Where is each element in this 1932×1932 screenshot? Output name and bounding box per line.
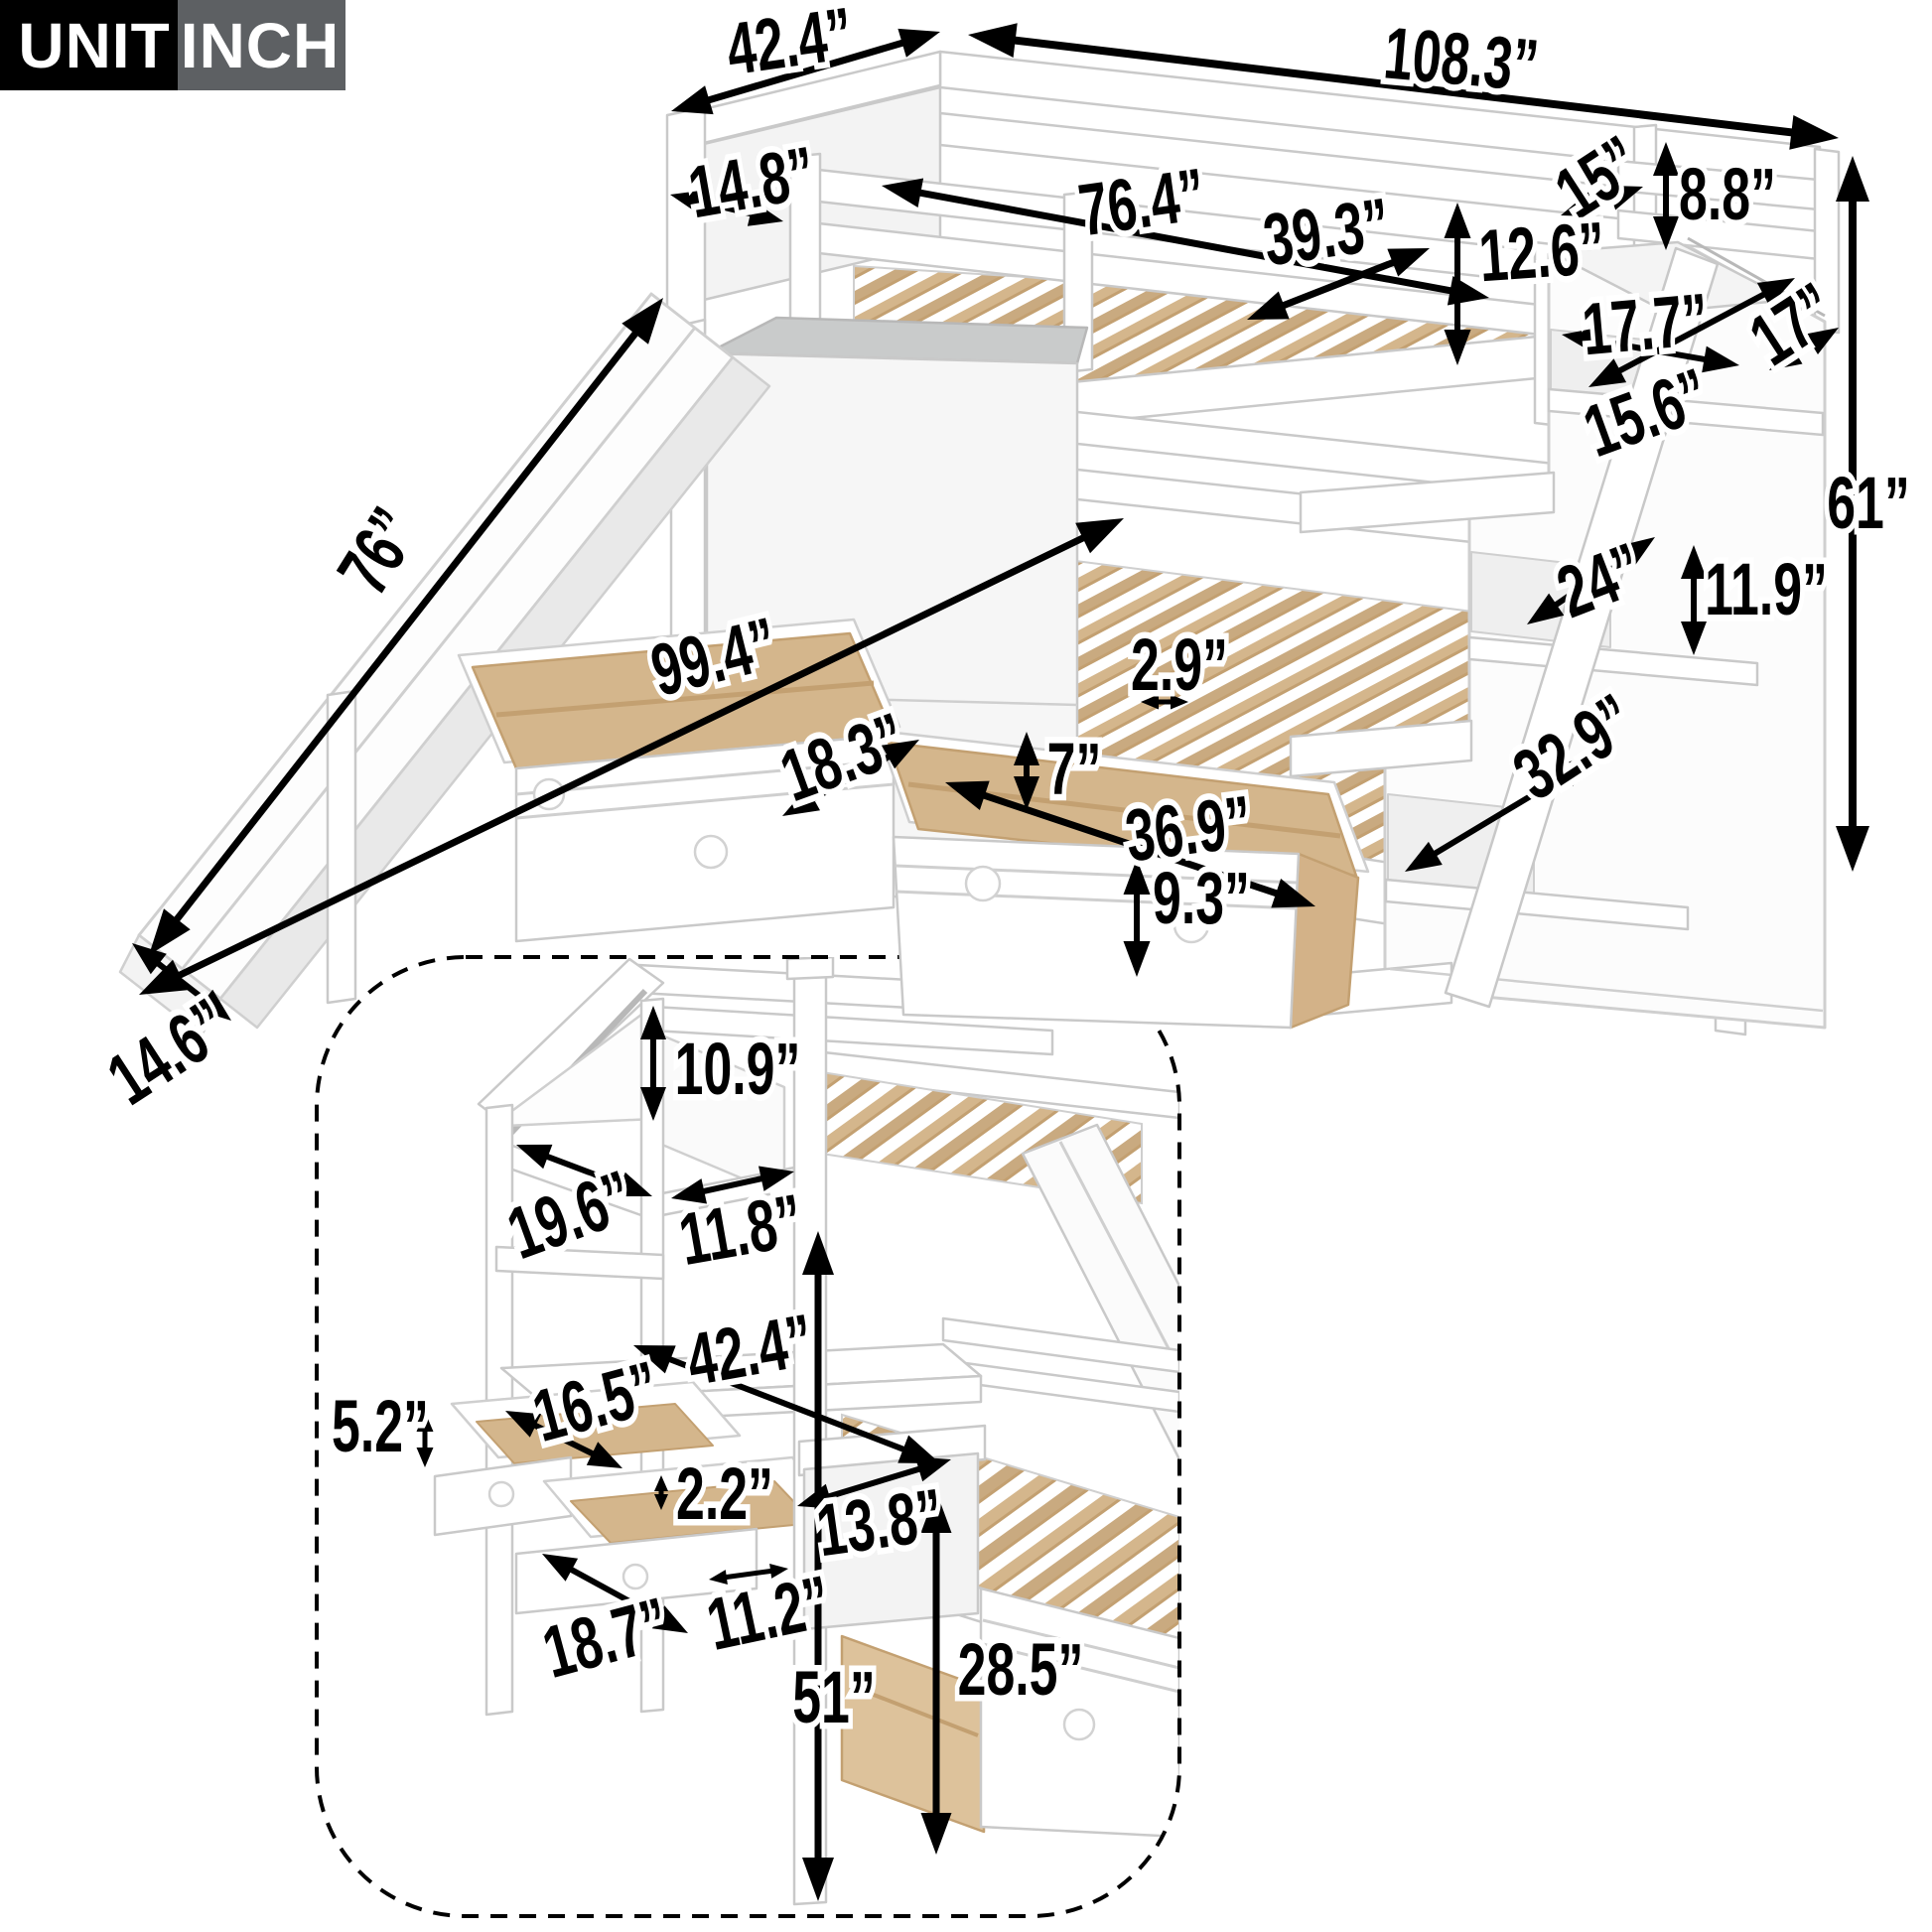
svg-text:2.2”: 2.2” xyxy=(676,1452,773,1535)
svg-text:8.8”: 8.8” xyxy=(1679,153,1776,235)
svg-text:12.6”: 12.6” xyxy=(1476,206,1607,297)
svg-text:11.9”: 11.9” xyxy=(1705,548,1828,630)
svg-text:13.8”: 13.8” xyxy=(812,1472,948,1572)
svg-text:2.9”: 2.9” xyxy=(1131,623,1228,706)
svg-text:INCH: INCH xyxy=(181,10,340,81)
svg-text:108.3”: 108.3” xyxy=(1381,11,1542,107)
svg-text:39.3”: 39.3” xyxy=(1259,182,1395,281)
svg-text:61”: 61” xyxy=(1827,462,1910,544)
svg-text:UNIT: UNIT xyxy=(18,10,170,81)
svg-text:76.4”: 76.4” xyxy=(1074,152,1210,251)
svg-text:9.3”: 9.3” xyxy=(1153,857,1250,939)
svg-text:51”: 51” xyxy=(792,1656,876,1738)
svg-text:7”: 7” xyxy=(1047,728,1102,810)
svg-text:10.9”: 10.9” xyxy=(675,1028,801,1110)
svg-text:28.5”: 28.5” xyxy=(958,1628,1084,1711)
svg-text:5.2”: 5.2” xyxy=(332,1385,429,1467)
